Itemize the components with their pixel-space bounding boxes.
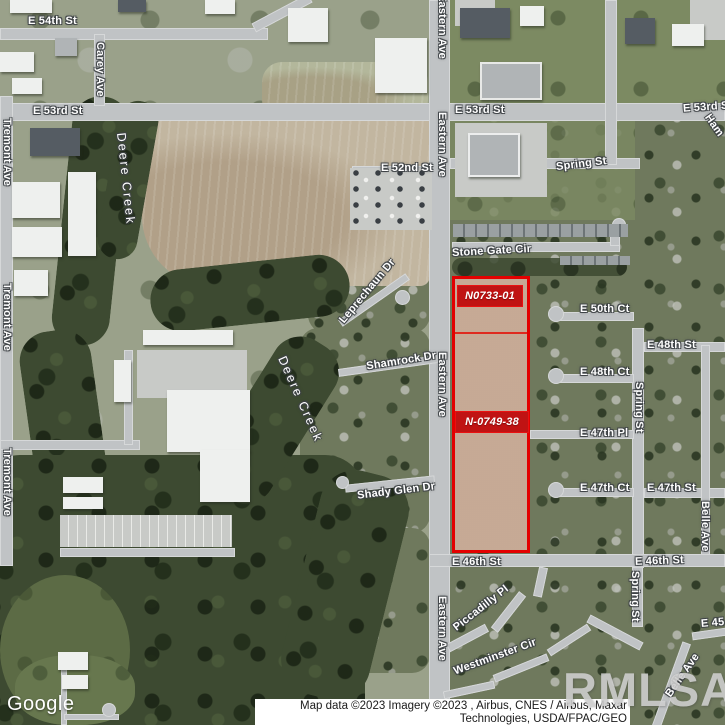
road-parking-row (60, 548, 235, 557)
street-label-e50th-ct: E 50th Ct (580, 303, 629, 315)
building-footprint-hotel (468, 133, 520, 177)
building-footprint (375, 38, 427, 93)
street-label-spring-st-mid: Spring St (633, 382, 645, 433)
street-label-tremont-ave-2: Tremont Ave (1, 283, 13, 351)
street-label-e46th-st-west: E 46th St (452, 556, 501, 568)
street-label-tremont-ave-3: Tremont Ave (1, 448, 13, 516)
street-label-eastern-ave-2: Eastern Ave (436, 112, 448, 177)
building-footprint (10, 0, 52, 13)
building-footprint (672, 24, 704, 46)
culdesac-e48th (548, 368, 564, 384)
street-label-e46th-st-east: E 46th St (635, 554, 684, 568)
building-footprint (68, 172, 96, 256)
building-footprint (55, 38, 77, 56)
road-e54th-st (0, 28, 268, 40)
street-label-carey-ave: Carey Ave (94, 42, 106, 97)
street-label-e47th-pl: E 47th Pl (580, 427, 628, 439)
townhome-row-stone-gate (453, 224, 628, 237)
parcel-divider-line (455, 332, 527, 334)
road-spring-st (632, 328, 644, 568)
building-footprint (12, 78, 42, 94)
rmlsa-watermark: RMLSA (563, 662, 725, 717)
building-footprint (143, 330, 233, 345)
parcel-label-n0749-38: N-0749-38 (455, 411, 529, 433)
building-footprint (62, 675, 88, 689)
google-logo[interactable]: Google (7, 693, 75, 716)
street-label-eastern-ave-4: Eastern Ave (436, 596, 448, 661)
street-label-e48th-st: E 48th St (647, 339, 696, 351)
building-footprint (460, 8, 510, 38)
parking-lot-west-of-eastern (350, 168, 432, 230)
street-label-e47th-ct: E 47th Ct (580, 482, 629, 494)
culdesac-e47th (548, 482, 564, 498)
building-footprint (480, 62, 542, 100)
building-footprint (114, 360, 131, 402)
street-label-tremont-ave-1: Tremont Ave (1, 118, 13, 186)
building-footprint (63, 497, 103, 509)
culdesac-leprechaun (395, 290, 410, 305)
culdesac-e50th (548, 306, 564, 322)
street-label-e53rd-st-west: E 53rd St (33, 105, 83, 117)
building-footprint (625, 18, 655, 44)
building-footprint (58, 652, 88, 670)
building-footprint (12, 227, 62, 257)
building-footprint (288, 8, 328, 42)
building-footprint-plant-main (167, 390, 250, 452)
building-footprint (118, 0, 146, 12)
street-label-e48th-ct: E 48th Ct (580, 366, 629, 378)
street-label-e54th-st: E 54th St (28, 15, 77, 27)
building-footprint (12, 182, 60, 218)
building-footprint (520, 6, 544, 26)
building-footprint (0, 52, 34, 72)
building-footprint (30, 128, 80, 156)
street-label-belle-ave: Belle Ave (699, 501, 711, 552)
street-label-e52nd-st: E 52nd St (381, 162, 433, 174)
culdesac-bottom-left (102, 703, 116, 717)
street-label-e45th-partial: E 45 (701, 616, 725, 630)
road-top-right-vertical (605, 0, 617, 165)
parcel-label-n0733-01: N0733-01 (457, 285, 523, 307)
road-plant-access (0, 440, 140, 450)
parking-row-lot (60, 515, 232, 547)
street-label-e47th-st: E 47th St (647, 482, 696, 494)
street-label-e53rd-st-mid: E 53rd St (455, 104, 505, 116)
townhome-row-stone-gate-2 (560, 256, 630, 265)
satellite-map-canvas[interactable]: N0733-01 N-0749-38 E 54th St Carey Ave E… (0, 0, 725, 725)
building-footprint-plant-south (200, 450, 250, 502)
building-footprint (63, 477, 103, 493)
building-footprint (205, 0, 235, 14)
street-label-eastern-ave-1: Eastern Ave (436, 0, 448, 59)
street-label-spring-st-south: Spring St (629, 571, 641, 622)
building-footprint (14, 270, 48, 296)
culdesac-shady-glen (336, 476, 349, 489)
street-label-eastern-ave-3: Eastern Ave (436, 352, 448, 417)
